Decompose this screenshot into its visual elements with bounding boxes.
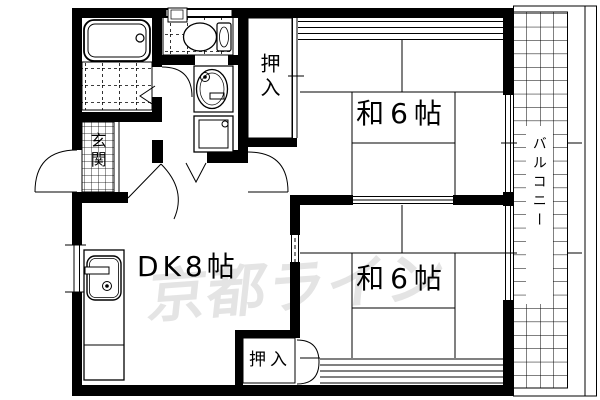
hall-dk-folding-door [186, 163, 206, 182]
window-kitchen [65, 245, 86, 292]
kitchen-sink-counter [84, 250, 124, 380]
room-label-dk: DK8帖 [137, 252, 277, 281]
kitchen-faucet [85, 267, 109, 274]
closet-top-fusuma [288, 18, 304, 138]
wash-basin [194, 66, 233, 112]
wall-between-rooms-left [290, 195, 353, 205]
closet-top-label: 押入 [258, 53, 279, 101]
wall-right-mid [503, 192, 513, 206]
genkan-label: 玄関 [88, 132, 105, 170]
toilet-bowl [184, 23, 217, 51]
window-band-top [298, 22, 503, 40]
wall-closet-bottom-top [235, 330, 300, 338]
closet-bottom-double-doors [297, 340, 319, 384]
wall-between-rooms-right [453, 195, 503, 205]
bath-tile-floor [82, 62, 152, 110]
wall-right-upper [503, 18, 513, 95]
wall-bottom [72, 385, 513, 396]
hall-dk-hinged-door [128, 164, 178, 219]
closet-bottom-label: 押入 [245, 352, 295, 370]
wall-top [72, 8, 513, 18]
sliding-doors [292, 197, 454, 267]
wall-bath-bottom [72, 112, 160, 122]
genkan-step-edge [114, 122, 119, 192]
wall-closet-bottom-left [235, 338, 243, 385]
washing-machine-pan [194, 116, 233, 152]
wall-toilet-bottom-left [162, 55, 195, 65]
wall-hall-stub [152, 140, 163, 163]
window-band-bottom [320, 359, 503, 383]
wall-genkan-bottom [72, 192, 128, 203]
wall-dk-room2-lower [290, 262, 300, 330]
wall-left-lower [72, 292, 82, 385]
wall-bath-right-upper [152, 18, 162, 67]
bathtub [84, 20, 150, 61]
room-label-washitsu-top: 和6帖 [341, 99, 463, 128]
dk-room1-door [248, 152, 288, 192]
room-label-washitsu-bottom: 和6帖 [341, 264, 463, 293]
bath-door-arc [162, 67, 192, 97]
entrance-door [35, 150, 77, 192]
fusuma-between-rooms [353, 197, 453, 204]
floorplan-linework [0, 0, 600, 400]
balcony-area [514, 6, 597, 396]
wall-left-upper [72, 18, 82, 150]
wall-closet-top-bottom [243, 138, 297, 147]
floorplan: 京都ライン [0, 0, 600, 400]
wall-right-lower [503, 300, 513, 385]
wall-dk-room2-upper [290, 205, 300, 235]
balcony-label: バルコニー [531, 136, 546, 231]
